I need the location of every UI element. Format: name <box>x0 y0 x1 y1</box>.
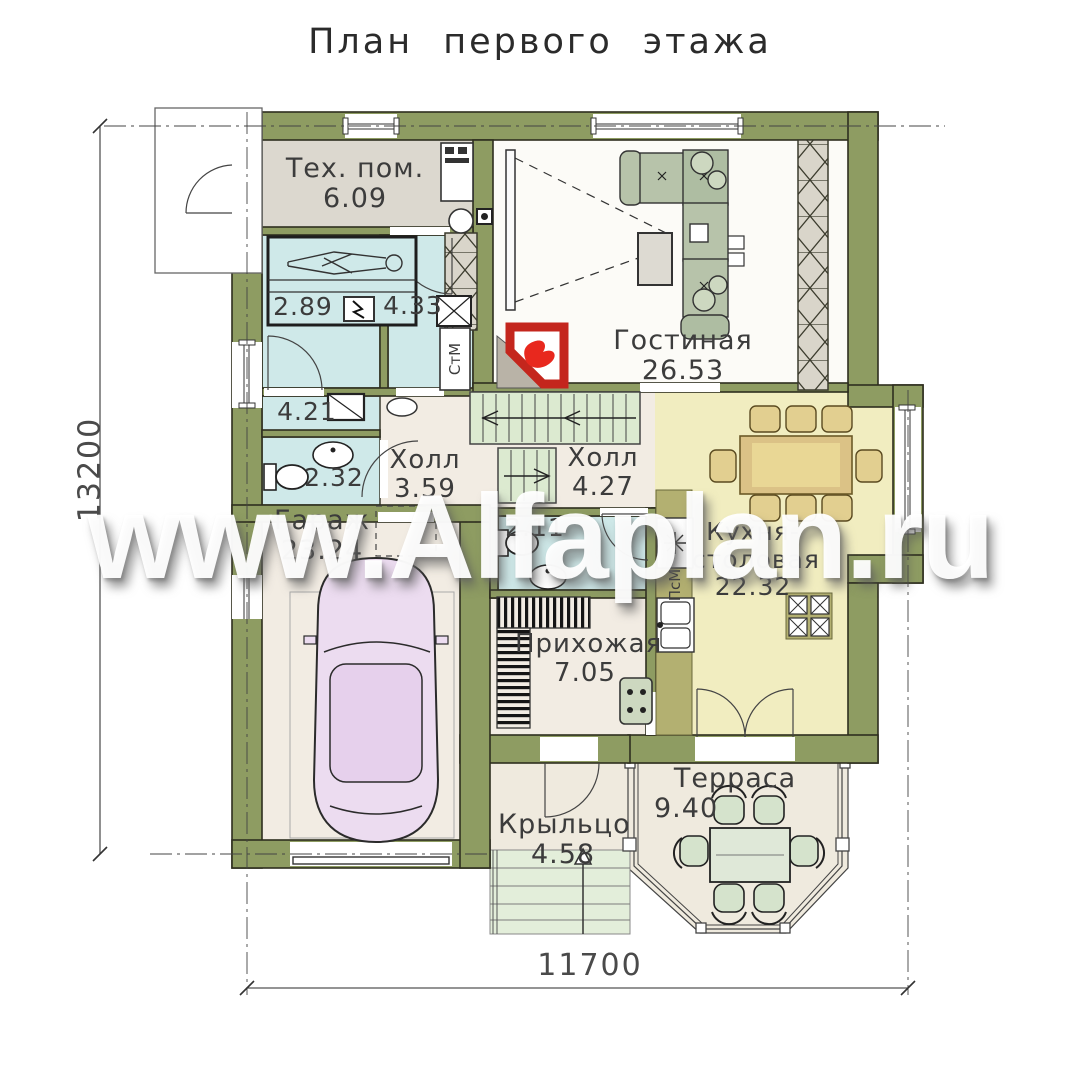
room-label-sauna: 2.89 <box>270 293 336 321</box>
room-label-entry: Прихожая7.05 <box>515 630 655 687</box>
room-label-shower: 4.33 <box>383 292 443 320</box>
kitchen-sink-icon <box>657 598 694 652</box>
dimension-width: 11700 <box>500 948 680 983</box>
heater-icon <box>344 297 374 321</box>
room-label-tech: Тех. пом.6.09 <box>285 154 425 213</box>
room-label-terrace: Терраса9.40 <box>640 764 830 823</box>
watermark: www.Alfaplan.ru <box>87 468 993 606</box>
page-title: План первого этажа <box>0 22 1080 62</box>
room-label-porch: Крыльцо4.58 <box>498 810 628 869</box>
room-label-living: Гостиная26.53 <box>608 326 758 385</box>
fireplace-icon <box>497 327 564 388</box>
entry-stoop <box>155 108 262 273</box>
washbasin-icon <box>387 398 417 416</box>
coffee-table-icon <box>638 233 672 285</box>
washing-machine-label: СтМ <box>446 339 464 379</box>
floor-plan: План первого этажа <box>0 0 1080 1080</box>
boiler-icon <box>449 209 473 233</box>
garage-door <box>293 857 449 864</box>
room-label-bath: 4.21 <box>276 398 338 426</box>
